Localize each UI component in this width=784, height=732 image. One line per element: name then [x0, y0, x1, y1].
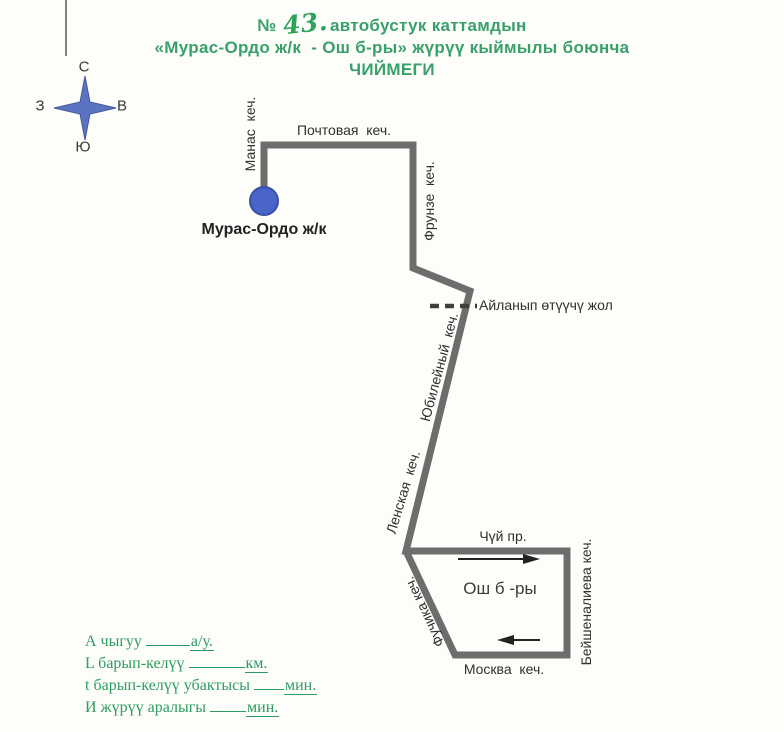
compass-south-label: Ю	[75, 139, 90, 156]
title-line-2: «Мурас-Ордо ж/к - Ош б-ры» жүрүү кыймылы…	[0, 37, 784, 59]
street-label-manas: Манас кеч.	[242, 97, 258, 172]
compass-west-label: З	[35, 98, 44, 115]
page-title: №43.автобустук каттамдын «Мурас-Ордо ж/к…	[0, 12, 784, 81]
start-stop-marker	[250, 187, 278, 215]
detour-road-label: Айланып өтүүчү жол	[479, 297, 613, 313]
legend-label: t барып-келүү убактысы	[85, 677, 254, 694]
start-stop-label: Мурас-Ордо ж/к	[202, 221, 327, 239]
loop-area-label: Ош б -ры	[463, 579, 536, 599]
street-label-chuy: Чүй пр.	[479, 528, 526, 544]
route-diagram-page: №43.автобустук каттамдын «Мурас-Ордо ж/к…	[0, 0, 784, 732]
legend-line-roundtrip-time: t барып-келүү убактысы мин.	[85, 675, 317, 697]
street-label-beyshenalieva: Бейшеналиева кеч.	[578, 539, 594, 666]
fill-in-blank	[189, 653, 245, 668]
legend-unit: мин.	[246, 699, 279, 717]
street-label-pochtovaya: Почтовая кеч.	[297, 122, 391, 138]
fill-in-blank	[210, 697, 246, 712]
legend-label: А чыгуу	[85, 633, 146, 650]
compass-star-icon	[54, 76, 116, 140]
legend-line-interval: И жүрүү аралыгы мин.	[85, 697, 317, 719]
compass-north-label: С	[79, 59, 90, 76]
legend-label: L барып-келүү	[85, 655, 189, 672]
title-line-1-text: автобустук каттамдын	[330, 16, 527, 35]
legend-line-departures: А чыгуу а/у.	[85, 631, 317, 653]
compass-east-label: В	[117, 98, 127, 115]
legend-unit: а/у.	[190, 633, 214, 651]
street-label-moskva: Москва кеч.	[464, 661, 544, 677]
direction-arrow-west-icon	[497, 635, 540, 645]
legend-unit: мин.	[284, 677, 317, 695]
title-line-3: ЧИЙМЕГИ	[0, 59, 784, 81]
handwritten-route-number: 43.	[282, 11, 328, 38]
street-label-frunze: Фрунзе кеч.	[421, 161, 437, 241]
fill-in-blank	[146, 631, 190, 646]
legend-label: И жүрүү аралыгы	[85, 699, 210, 716]
number-sign: №	[257, 16, 276, 35]
legend: А чыгуу а/у. L барып-келүү км. t барып-к…	[85, 631, 317, 719]
legend-unit: км.	[245, 655, 269, 673]
fill-in-blank	[254, 675, 284, 690]
direction-arrow-east-icon	[458, 554, 540, 564]
legend-line-distance: L барып-келүү км.	[85, 653, 317, 675]
title-line-1: №43.автобустук каттамдын	[0, 12, 784, 37]
